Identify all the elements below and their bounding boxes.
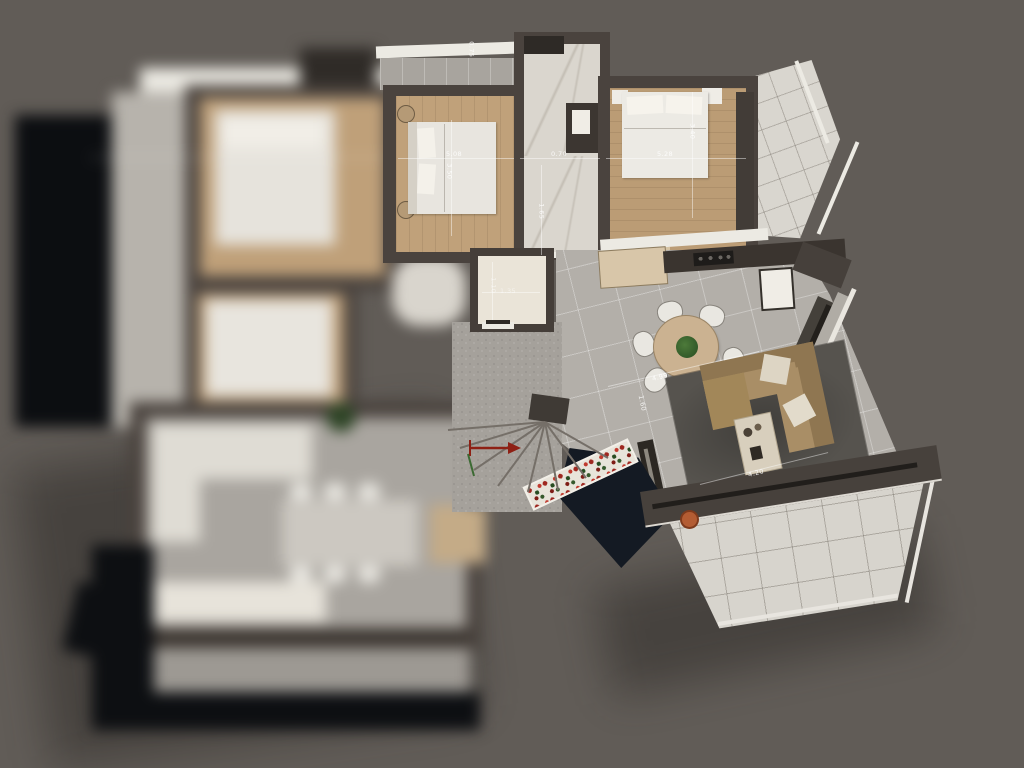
dimension-label-bedroom-a-width: 5.08 <box>446 151 462 158</box>
start-mark <box>468 454 474 476</box>
sideboard <box>150 582 326 622</box>
floor-plan-render: 0.75 5.08 3.50 0.70 1.65 5.28 3.40 4.99 … <box>0 0 1024 768</box>
chair <box>357 564 381 584</box>
centerpiece-plant <box>676 336 698 358</box>
shower <box>524 36 564 54</box>
pillow <box>666 95 703 115</box>
dimension-line <box>520 158 600 159</box>
dark-parapet <box>150 692 480 730</box>
terracotta-pot <box>682 512 697 527</box>
pillow <box>627 95 664 115</box>
dimension-label-bedroom-a-depth: 3.50 <box>446 163 453 179</box>
chair <box>289 482 313 502</box>
door-leaf <box>486 320 510 324</box>
chair <box>323 564 347 584</box>
stair-treads <box>448 422 608 492</box>
pillow <box>417 163 436 194</box>
stairs <box>440 370 660 510</box>
kitchen-island <box>599 247 667 288</box>
pergola-block <box>300 48 376 88</box>
bathtub <box>392 256 466 326</box>
deck-patch <box>430 505 486 563</box>
vanity-sink <box>572 110 590 134</box>
dimension-label-corridor-length: 1.65 <box>538 203 545 219</box>
wall-band <box>146 628 468 650</box>
chair <box>323 482 347 502</box>
dimension-line <box>692 92 693 218</box>
dimension-label-hall-width: 0.70 <box>551 151 567 158</box>
plant <box>326 402 356 432</box>
dimension-label-wc-depth: 1.10 <box>490 277 497 293</box>
dining-table-rect <box>282 500 418 566</box>
bed <box>206 300 332 396</box>
throw-pillow <box>760 354 791 385</box>
dimension-label-wc-width: 1.35 <box>500 288 516 295</box>
dimension-line <box>398 158 514 159</box>
dimension-label-bedroom-b-depth: 3.40 <box>689 123 696 139</box>
nightstand <box>398 106 414 122</box>
dimension-label-bedroom-b-width: 5.28 <box>657 151 673 158</box>
pillow <box>417 127 436 158</box>
table-object <box>754 423 762 431</box>
table-object <box>743 427 754 438</box>
dimension-line <box>606 158 746 159</box>
dimension-label-top-balcony: 0.75 <box>468 41 475 57</box>
kitchen-sink <box>761 269 794 309</box>
corridor-floor <box>524 156 600 256</box>
bed-a-headboard <box>408 122 417 214</box>
stair-opening <box>528 393 569 424</box>
table-object <box>750 446 763 461</box>
bed-pillows <box>222 118 324 148</box>
closet <box>736 92 754 237</box>
sofa-white-arm <box>152 424 200 542</box>
chair <box>289 564 313 584</box>
dark-slab <box>15 115 127 427</box>
chair <box>357 482 381 502</box>
cooktop <box>693 250 734 266</box>
dimension-line <box>90 157 390 158</box>
